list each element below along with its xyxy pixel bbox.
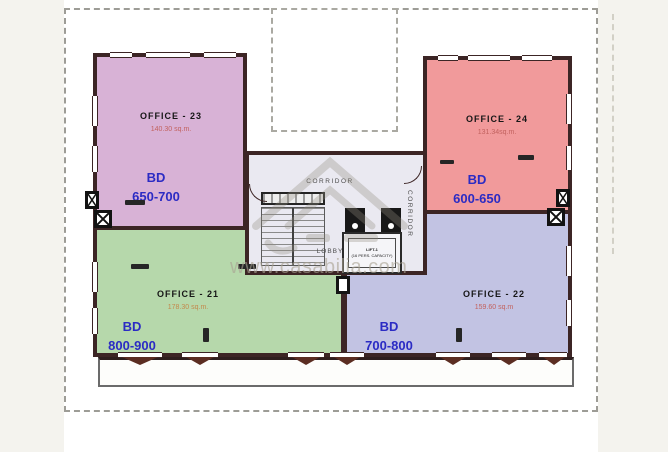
- office-23-label: OFFICE - 23: [140, 111, 202, 121]
- column-marker: [518, 155, 534, 160]
- column-marker: [203, 328, 209, 342]
- window: [468, 55, 510, 61]
- office-23-area: 140.30 sq.m.: [151, 126, 191, 133]
- window: [566, 146, 572, 170]
- window-sill: [186, 357, 214, 365]
- floor-plan: OFFICE - 23 140.30 sq.m. BD 650-700 OFFI…: [0, 0, 668, 452]
- office-23-currency: BD: [116, 169, 196, 188]
- window: [110, 52, 132, 58]
- window: [146, 52, 190, 58]
- window-sill: [122, 357, 158, 365]
- office-22-area: 159.60 sq.m: [475, 304, 514, 311]
- window: [566, 246, 572, 276]
- light-well-void: [271, 8, 398, 132]
- window-sill: [440, 357, 466, 365]
- neighbor-boundary-line: [612, 14, 614, 254]
- outside-area-right: [598, 0, 668, 452]
- window: [438, 55, 458, 61]
- column-marker: [125, 200, 145, 205]
- office-21-price-range: 800-900: [92, 337, 172, 356]
- window: [566, 300, 572, 326]
- window: [566, 94, 572, 124]
- window-sill: [334, 357, 360, 365]
- window: [92, 146, 98, 172]
- office-24-price: BD 600-650: [437, 171, 517, 209]
- column-marker: [440, 160, 454, 164]
- office-24-label: OFFICE - 24: [466, 114, 528, 124]
- window: [522, 55, 552, 61]
- office-21-price: BD 800-900: [92, 318, 172, 356]
- shaft-x-icon: [85, 191, 99, 209]
- office-24-area: 131.34sq.m.: [478, 129, 517, 136]
- window: [204, 52, 236, 58]
- outside-area-left: [0, 0, 64, 452]
- window-sill: [543, 357, 565, 365]
- shaft-x-icon: [547, 208, 565, 226]
- office-22-price: BD 700-800: [349, 318, 429, 356]
- window-sill: [496, 357, 522, 365]
- watermark-logo: [248, 148, 413, 263]
- office-22-currency: BD: [349, 318, 429, 337]
- office-21-label: OFFICE - 21: [157, 289, 219, 299]
- office-21-area: 178.30 sq.m.: [168, 304, 208, 311]
- office-24-currency: BD: [437, 171, 517, 190]
- shaft-x-icon: [556, 189, 570, 207]
- column-marker: [131, 264, 149, 269]
- window-sill: [292, 357, 320, 365]
- shaft-x-icon: [94, 210, 112, 228]
- office-22-label: OFFICE - 22: [463, 289, 525, 299]
- window: [92, 96, 98, 126]
- office-22-price-range: 700-800: [349, 337, 429, 356]
- column-marker: [456, 328, 462, 342]
- office-21-currency: BD: [92, 318, 172, 337]
- office-24-price-range: 600-650: [437, 190, 517, 209]
- window: [92, 262, 98, 292]
- watermark-url: www.casabilia.com: [230, 256, 407, 279]
